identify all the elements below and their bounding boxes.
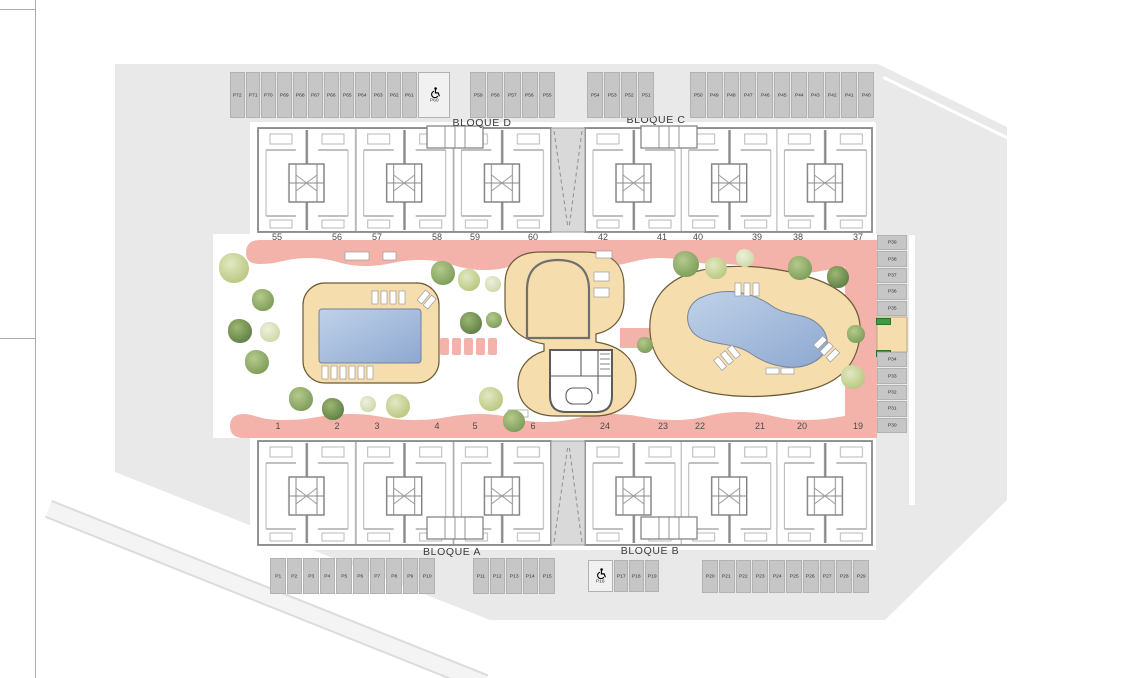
accessible-parking-stall: P16 <box>588 560 613 592</box>
parking-stall-label: P22 <box>739 574 748 579</box>
tree-icon <box>485 276 501 292</box>
building-block-b <box>585 441 872 545</box>
unit-number: 23 <box>658 421 668 431</box>
unit-number: 60 <box>528 232 538 242</box>
parking-stall-label: P45 <box>778 93 787 98</box>
parking-stall-label: P67 <box>311 93 320 98</box>
parking-stall: P7 <box>370 558 386 594</box>
parking-stall: P6 <box>353 558 369 594</box>
unit-number: 22 <box>695 421 705 431</box>
parking-stall-label: P31 <box>888 406 897 411</box>
parking-stall: P68 <box>293 72 308 118</box>
unit-number: 19 <box>853 421 863 431</box>
unit-number: 42 <box>598 232 608 242</box>
parking-stall-label: P10 <box>423 574 432 579</box>
parking-stall-label: P2 <box>291 574 297 579</box>
tree-icon <box>458 269 480 291</box>
parking-stall: P44 <box>791 72 807 118</box>
parking-stall: P55 <box>539 72 555 118</box>
building-block-a <box>258 441 551 545</box>
unit-number: 41 <box>657 232 667 242</box>
unit-number: 59 <box>470 232 480 242</box>
parking-stall: P18 <box>629 560 643 592</box>
parking-stall-label: P55 <box>543 93 552 98</box>
unit-number: 2 <box>334 421 339 431</box>
parking-stall: P10 <box>419 558 435 594</box>
parking-stall-label: P66 <box>327 93 336 98</box>
parking-stall: P46 <box>757 72 773 118</box>
parking-group: P39P38P37P36P35 <box>877 235 907 317</box>
unit-number: 38 <box>793 232 803 242</box>
parking-stall-label: P24 <box>773 574 782 579</box>
parking-stall-label: P28 <box>840 574 849 579</box>
parking-stall-label: P19 <box>648 574 657 579</box>
parking-stall-label: P52 <box>625 93 634 98</box>
parking-stall: P50 <box>690 72 706 118</box>
plan-graphics <box>0 0 1125 678</box>
site-plan-drawing: BLOQUE D BLOQUE C BLOQUE A BLOQUE B P72P… <box>0 0 1125 678</box>
parking-stall-label: P14 <box>526 574 535 579</box>
parking-stall: P53 <box>604 72 620 118</box>
parking-stall: P45 <box>774 72 790 118</box>
unit-number: 20 <box>797 421 807 431</box>
parking-stall-label: P46 <box>761 93 770 98</box>
parking-stall: P36 <box>877 284 907 299</box>
tree-icon <box>705 257 727 279</box>
building-block-d <box>258 128 551 232</box>
parking-stall-label: P26 <box>806 574 815 579</box>
parking-stall-label: P8 <box>391 574 397 579</box>
parking-stall-label: P5 <box>341 574 347 579</box>
parking-stall: P38 <box>877 251 907 266</box>
parking-group: P59P58P57P56P55 <box>470 72 556 118</box>
parking-stall-label: P34 <box>888 357 897 362</box>
left-pool <box>319 309 421 363</box>
parking-stall: P47 <box>740 72 756 118</box>
parking-stall: P57 <box>504 72 520 118</box>
parking-stall-label: P39 <box>888 240 897 245</box>
parking-stall-label: P33 <box>888 374 897 379</box>
parking-stall-label: P48 <box>727 93 736 98</box>
parking-stall-label: P3 <box>308 574 314 579</box>
tree-icon <box>847 325 865 343</box>
parking-stall-label: P36 <box>888 289 897 294</box>
parking-stall: P22 <box>736 560 752 593</box>
parking-stall-label: P59 <box>474 93 483 98</box>
parking-stall-label: P32 <box>888 390 897 395</box>
parking-stall: P72 <box>230 72 245 118</box>
parking-stall: P27 <box>820 560 836 593</box>
parking-stall-label: P18 <box>632 574 641 579</box>
parking-stall-label: P23 <box>756 574 765 579</box>
parking-stall: P40 <box>858 72 874 118</box>
parking-stall: P20 <box>702 560 718 593</box>
parking-stall: P49 <box>707 72 723 118</box>
parking-stall: P5 <box>336 558 352 594</box>
tree-icon <box>228 319 252 343</box>
parking-stall: P59 <box>470 72 486 118</box>
parking-stall: P26 <box>803 560 819 593</box>
parking-stall-label: P13 <box>510 574 519 579</box>
accessible-parking-stall: P60 <box>418 72 450 118</box>
parking-stall: P67 <box>308 72 323 118</box>
parking-stall-label: P35 <box>888 306 897 311</box>
tree-icon <box>827 266 849 288</box>
parking-stall-label: P25 <box>790 574 799 579</box>
parking-stall: P52 <box>621 72 637 118</box>
tree-icon <box>252 289 274 311</box>
parking-stall: P48 <box>724 72 740 118</box>
wheelchair-icon <box>429 87 440 98</box>
unit-number: 57 <box>372 232 382 242</box>
parking-stall-label: P17 <box>617 574 626 579</box>
parking-stall-label: P69 <box>280 93 289 98</box>
parking-stall: P35 <box>877 301 907 316</box>
block-label-b: BLOQUE B <box>621 545 679 557</box>
tree-icon <box>260 322 280 342</box>
parking-group: P50P49P48P47P46P45P44P43P42P41P40 <box>690 72 875 118</box>
parking-stall-label: P71 <box>249 93 258 98</box>
parking-stall: P11 <box>473 558 489 594</box>
parking-stall: P29 <box>853 560 869 593</box>
parking-stall-label: P20 <box>706 574 715 579</box>
tree-icon <box>486 312 502 328</box>
parking-stall: P28 <box>836 560 852 593</box>
parking-stall: P8 <box>386 558 402 594</box>
parking-stall: P23 <box>752 560 768 593</box>
parking-stall-label: P1 <box>275 574 281 579</box>
tree-icon <box>736 249 754 267</box>
parking-group: P20P21P22P23P24P25P26P27P28P29 <box>702 560 870 593</box>
parking-stall-label: P9 <box>408 574 414 579</box>
central-deck <box>505 252 636 416</box>
parking-stall-label: P47 <box>744 93 753 98</box>
parking-stall-label: P54 <box>591 93 600 98</box>
unit-number: 1 <box>275 421 280 431</box>
unit-number: 39 <box>752 232 762 242</box>
parking-stall: P34 <box>877 352 907 367</box>
parking-stall-label: P21 <box>722 574 731 579</box>
parking-stall-label: P56 <box>525 93 534 98</box>
parking-stall-label: P4 <box>325 574 331 579</box>
parking-stall: P33 <box>877 368 907 383</box>
parking-stall-label: P53 <box>608 93 617 98</box>
parking-stall-label: P49 <box>710 93 719 98</box>
unit-number: 4 <box>434 421 439 431</box>
unit-number: 40 <box>693 232 703 242</box>
parking-stall: P61 <box>402 72 417 118</box>
tree-icon <box>219 253 249 283</box>
tree-icon <box>386 394 410 418</box>
tree-icon <box>460 312 482 334</box>
block-label-a: BLOQUE A <box>423 546 481 558</box>
unit-number: 5 <box>472 421 477 431</box>
parking-stall-label: P51 <box>642 93 651 98</box>
tree-icon <box>673 251 699 277</box>
ramp-corridor-bottom <box>551 441 585 545</box>
pool-house <box>550 350 612 412</box>
parking-stall: P19 <box>645 560 659 592</box>
parking-group: P11P12P13P14P15 <box>473 558 556 594</box>
parking-stall-label: P29 <box>857 574 866 579</box>
parking-stall: P62 <box>387 72 402 118</box>
parking-stall-label: P12 <box>493 574 502 579</box>
parking-stall-label: P6 <box>358 574 364 579</box>
unit-number: 58 <box>432 232 442 242</box>
building-block-c <box>585 128 872 232</box>
tree-icon <box>289 387 313 411</box>
parking-stall-label: P11 <box>477 574 485 579</box>
parking-stall-label: P63 <box>374 93 383 98</box>
parking-stall-label: P68 <box>296 93 305 98</box>
unit-number: 24 <box>600 421 610 431</box>
parking-stall-label: P15 <box>543 574 552 579</box>
parking-stall-label: P72 <box>233 93 242 98</box>
unit-number: 3 <box>374 421 379 431</box>
tree-icon <box>503 410 525 432</box>
parking-stall: P69 <box>277 72 292 118</box>
parking-stall-label: P70 <box>264 93 273 98</box>
parking-stall-label: P37 <box>888 273 897 278</box>
parking-stall: P12 <box>490 558 506 594</box>
parking-stall-label: P43 <box>811 93 820 98</box>
unit-number: 56 <box>332 232 342 242</box>
parking-stall: P24 <box>769 560 785 593</box>
parking-stall: P42 <box>825 72 841 118</box>
parking-stall: P41 <box>841 72 857 118</box>
parking-stall: P66 <box>324 72 339 118</box>
parking-stall-label: P60 <box>430 98 439 103</box>
parking-stall: P3 <box>303 558 319 594</box>
unit-number: 37 <box>853 232 863 242</box>
parking-stall-label: P7 <box>374 574 380 579</box>
parking-stall: P2 <box>287 558 303 594</box>
parking-stall-label: P57 <box>508 93 517 98</box>
tree-icon <box>322 398 344 420</box>
parking-stall: P51 <box>638 72 654 118</box>
parking-stall: P63 <box>371 72 386 118</box>
parking-stall: P31 <box>877 401 907 416</box>
tree-icon <box>788 256 812 280</box>
parking-stall-label: P44 <box>794 93 803 98</box>
unit-number: 6 <box>530 421 535 431</box>
parking-stall-label: P50 <box>694 93 703 98</box>
parking-stall: P39 <box>877 235 907 250</box>
unit-number: 55 <box>272 232 282 242</box>
parking-stall: P30 <box>877 418 907 433</box>
parking-stall-label: P62 <box>390 93 399 98</box>
tree-icon <box>431 261 455 285</box>
parking-group: P54P53P52P51 <box>587 72 655 118</box>
parking-group: P17P18P19 <box>614 560 660 592</box>
parking-stall: P65 <box>340 72 355 118</box>
parking-stall-label: P65 <box>343 93 352 98</box>
parking-stall-label: P41 <box>845 93 854 98</box>
parking-stall: P70 <box>261 72 276 118</box>
parking-stall: P71 <box>246 72 261 118</box>
tree-icon <box>637 337 653 353</box>
parking-stall: P9 <box>403 558 419 594</box>
parking-stall: P56 <box>522 72 538 118</box>
unit-number: 21 <box>755 421 765 431</box>
parking-stall-label: P64 <box>358 93 367 98</box>
parking-stall: P43 <box>808 72 824 118</box>
parking-group: P1P2P3P4P5P6P7P8P9P10 <box>270 558 436 594</box>
parking-stall: P32 <box>877 385 907 400</box>
parking-stall-label: P61 <box>405 93 414 98</box>
tree-icon <box>360 396 376 412</box>
parking-stall-label: P58 <box>491 93 500 98</box>
tree-icon <box>841 365 865 389</box>
block-label-d: BLOQUE D <box>452 117 511 129</box>
ramp-corridor-top <box>551 128 585 232</box>
parking-stall: P64 <box>355 72 370 118</box>
tree-icon <box>245 350 269 374</box>
wheelchair-icon <box>595 568 606 579</box>
parking-stall-label: P40 <box>862 93 871 98</box>
parking-stall-label: P27 <box>823 574 832 579</box>
parking-stall-label: P38 <box>888 257 897 262</box>
parking-group: P72P71P70P69P68P67P66P65P64P63P62P61 <box>230 72 418 118</box>
tree-icon <box>479 387 503 411</box>
parking-stall-label: P16 <box>596 579 605 584</box>
parking-stall-label: P42 <box>828 93 837 98</box>
parking-stall-label: P30 <box>888 423 897 428</box>
parking-stall: P13 <box>506 558 522 594</box>
parking-stall: P21 <box>719 560 735 593</box>
label-chip <box>876 318 891 325</box>
parking-stall: P14 <box>523 558 539 594</box>
parking-stall: P1 <box>270 558 286 594</box>
parking-stall: P25 <box>786 560 802 593</box>
parking-stall: P15 <box>539 558 555 594</box>
parking-stall: P4 <box>320 558 336 594</box>
parking-stall: P58 <box>487 72 503 118</box>
parking-stall: P54 <box>587 72 603 118</box>
parking-stall: P17 <box>614 560 628 592</box>
parking-group: P34P33P32P31P30 <box>877 352 907 434</box>
parking-stall: P37 <box>877 268 907 283</box>
